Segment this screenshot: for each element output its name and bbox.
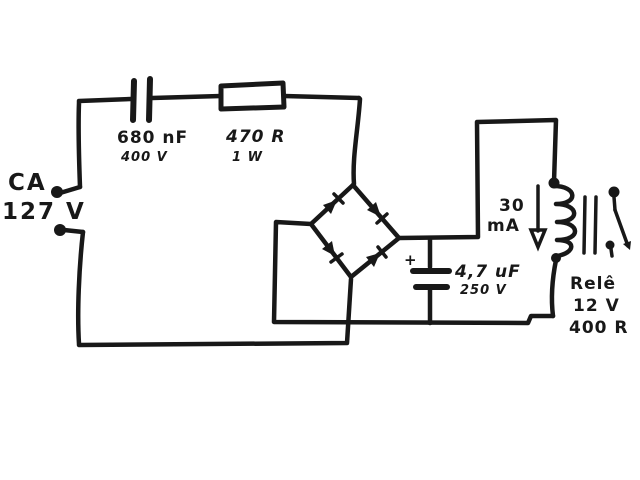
wire bbox=[64, 230, 83, 232]
polarity-plus-icon: + bbox=[404, 251, 417, 269]
current-value: 30 bbox=[499, 196, 525, 216]
relay-contacts bbox=[606, 187, 632, 257]
wire bbox=[60, 187, 80, 193]
circuit-diagram: CA 127 V 680 nF 400 V 470 R 1 W bbox=[0, 0, 640, 480]
ac-source: CA 127 V bbox=[2, 170, 86, 236]
capacitor-plate bbox=[149, 79, 150, 120]
series-resistor-value: 470 R bbox=[225, 127, 286, 147]
wire-to-bridge bbox=[354, 98, 360, 184]
current-unit: mA bbox=[487, 216, 520, 236]
series-capacitor: 680 nF 400 V bbox=[117, 79, 221, 165]
wire-coil-return bbox=[552, 260, 556, 316]
relay-coil: Relê 12 V 400 R bbox=[549, 178, 629, 339]
relay-voltage: 12 V bbox=[573, 296, 620, 316]
schematic-canvas: CA 127 V 680 nF 400 V 470 R 1 W bbox=[0, 0, 640, 480]
wire-dc-positive-rail bbox=[399, 120, 556, 238]
bridge-rectifier bbox=[311, 185, 399, 277]
contact-stem bbox=[614, 197, 615, 210]
series-resistor: 470 R 1 W bbox=[221, 83, 359, 165]
wire bbox=[152, 96, 221, 98]
ac-source-label: CA bbox=[8, 170, 47, 196]
contact-stem bbox=[611, 249, 612, 256]
series-resistor-rating: 1 W bbox=[232, 150, 263, 165]
relay-name: Relê bbox=[570, 274, 616, 294]
filter-capacitor-rating: 250 V bbox=[460, 283, 507, 298]
capacitor-plate bbox=[133, 81, 134, 120]
series-capacitor-rating: 400 V bbox=[120, 150, 168, 165]
relay-core-line bbox=[595, 197, 596, 253]
wire bbox=[284, 96, 359, 98]
contact-arm bbox=[615, 210, 628, 246]
relay-core-line bbox=[584, 197, 585, 253]
filter-capacitor-value: 4,7 uF bbox=[454, 262, 521, 282]
filter-capacitor: + 4,7 uF 250 V bbox=[404, 238, 521, 323]
coil-windings bbox=[554, 186, 575, 256]
ac-source-voltage: 127 V bbox=[2, 199, 86, 225]
current-annotation: 30 mA bbox=[487, 186, 545, 247]
resistor-body bbox=[221, 83, 284, 109]
wire-ac-return bbox=[78, 232, 351, 345]
series-capacitor-value: 680 nF bbox=[117, 128, 188, 148]
relay-coil-resistance: 400 R bbox=[569, 318, 629, 338]
